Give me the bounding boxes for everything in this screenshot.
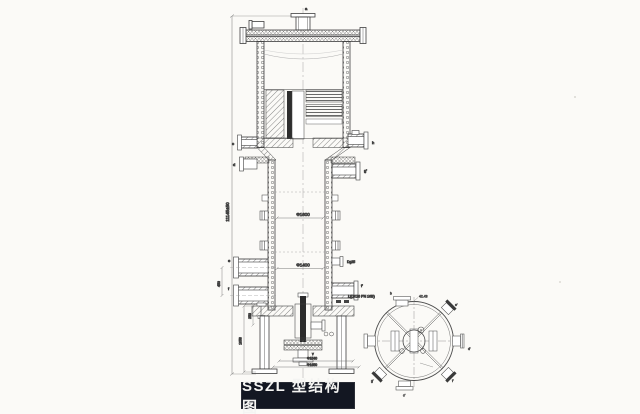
overall-height-label: 11145±50: [225, 202, 230, 222]
internals: [264, 90, 343, 140]
base-outer-label: Φ1650: [307, 363, 317, 367]
top-nozzle: [291, 14, 315, 31]
plan-angle-label: 42.43: [419, 295, 428, 299]
structure-drawing: 11145±50 a: [0, 0, 640, 414]
skirt-height-label: 1058: [239, 337, 243, 345]
nozzle-mark-bottom: v: [312, 352, 314, 356]
nozzle-mark-e: e: [228, 258, 231, 263]
column-shell: [262, 160, 338, 310]
stub-size-label: Dg25: [347, 260, 355, 264]
plan-mark-bottom-right: f': [452, 379, 454, 383]
nozzle-pitch-label: 450: [217, 281, 221, 287]
scan-speck: [574, 96, 576, 98]
upper-section-bottom: [245, 138, 355, 163]
flange-note: L(DK16 PN 16B): [348, 295, 375, 299]
plan-top-right-nozzle: [440, 299, 456, 315]
dia-lower-label: Φ1400: [296, 263, 310, 268]
right-lower-nozzle: [332, 281, 358, 303]
nozzle-mark-f: f: [228, 286, 230, 291]
plan-left-nozzle: [364, 334, 376, 348]
left-mid-nozzle: [240, 157, 258, 171]
right-upper-nozzle: [348, 131, 368, 150]
plan-view: 42.43 b e' d' f' c' g': [364, 292, 471, 398]
plan-right-nozzle: [453, 334, 465, 348]
plan-mark-bottom: c': [403, 394, 406, 398]
plan-mark-top: b: [390, 292, 392, 296]
base-inner-label: Φ1540: [307, 357, 317, 361]
left-upper-nozzle: [238, 135, 258, 150]
right-mid-nozzle: [332, 162, 360, 180]
plan-bottom-nozzle: [396, 363, 433, 390]
internal-slots: [391, 329, 437, 353]
nozzle-mark-left-upper: c: [232, 141, 234, 146]
plan-mark-top-right: e': [455, 303, 458, 307]
dia-upper-label: Φ1600: [296, 212, 310, 217]
right-small-stub: [332, 257, 343, 267]
nozzle-mark-left-mid: d: [233, 162, 235, 167]
title-block: SSZL 型结构图: [242, 383, 354, 408]
scanned-drawing-page: 11145±50 a: [0, 0, 640, 414]
nozzle-mark-top: a: [305, 6, 308, 11]
stub-offset-label: 253: [248, 313, 252, 319]
plan-mark-bottom-left: g': [371, 379, 374, 383]
plan-bottom-left-nozzle: [371, 366, 387, 382]
plan-bottom-right-nozzle: [440, 366, 456, 382]
plan-mark-right: d': [468, 347, 471, 351]
drawing-title: SSZL 型结构图: [242, 375, 354, 414]
nozzle-mark-right-lower: f': [361, 283, 363, 288]
nozzle-mark-right-mid: g': [364, 168, 367, 173]
elevation-view: 11145±50 a: [217, 6, 375, 380]
scan-speck: [559, 281, 561, 283]
nozzle-mark-right-upper: h: [372, 140, 374, 145]
